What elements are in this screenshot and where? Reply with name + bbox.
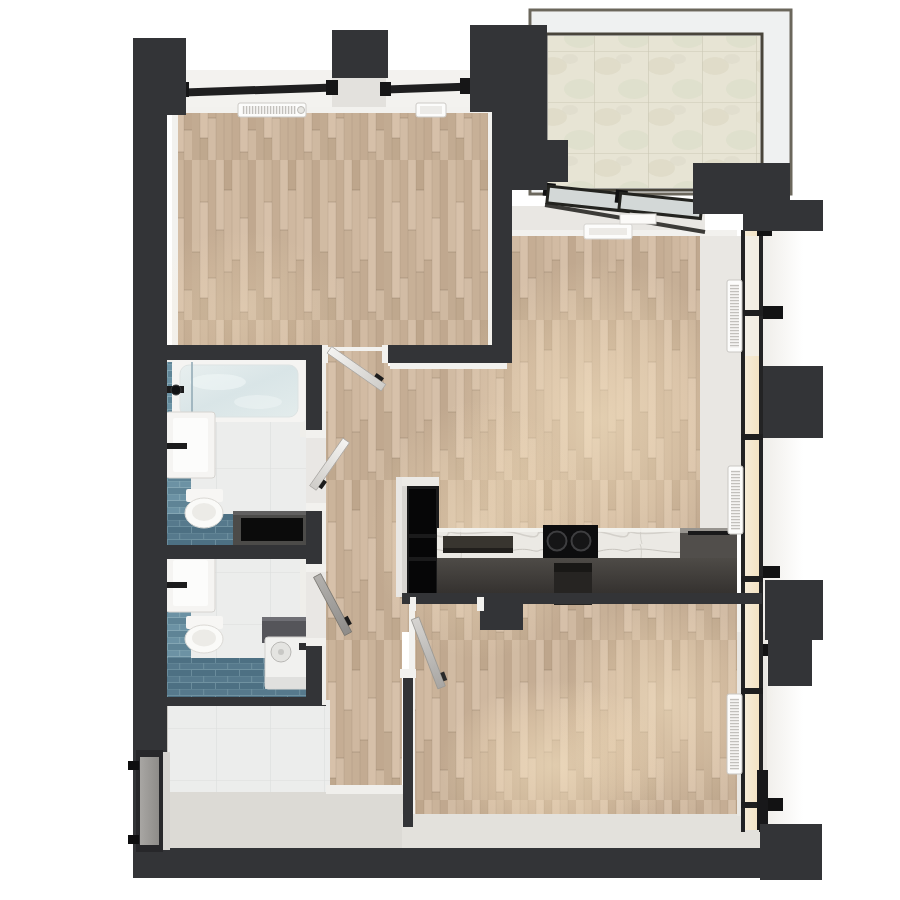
toilet-second-seat	[192, 630, 216, 647]
entry-door-panel	[140, 757, 159, 845]
wall-bathroom-top	[133, 345, 322, 360]
wall-bottom-right-corner	[760, 824, 822, 880]
wall-left	[133, 112, 167, 850]
floor-plan-render	[0, 0, 900, 900]
radiator-slats	[730, 284, 739, 348]
radiator-face	[420, 106, 442, 114]
entry-door-threshold	[163, 752, 170, 850]
door-jamb	[382, 345, 388, 363]
window-post	[326, 80, 338, 95]
facade-transom	[741, 434, 763, 440]
bath-faucet-knob	[171, 385, 181, 395]
cooktop-burner	[548, 532, 567, 551]
sink-block-top	[554, 563, 592, 572]
tall-cabinet-edge	[402, 486, 407, 597]
wall-window-pillar	[332, 30, 388, 78]
door-jamb	[306, 503, 326, 511]
facade-transom	[741, 688, 763, 694]
tall-cabinet-door	[409, 489, 436, 534]
bottom-room-bottom-face	[402, 814, 767, 852]
door-jamb	[306, 564, 326, 572]
wall-kitchen	[402, 593, 762, 604]
wall-bathroom-bottom	[150, 697, 326, 706]
counter-rail	[688, 531, 730, 535]
toilet-main-seat	[192, 503, 216, 521]
hall-bottom-trim	[326, 785, 404, 794]
washing-machine-shade	[265, 677, 312, 689]
wall-stub-cap	[400, 669, 416, 678]
door-jamb	[477, 597, 484, 611]
bathroom-main	[149, 356, 311, 547]
sill-vent-grille	[589, 228, 627, 235]
tall-cabinet-top	[402, 477, 439, 486]
cooktop-burner	[572, 532, 591, 551]
radiator-slats	[242, 106, 296, 114]
facade-transom	[741, 310, 763, 316]
entry-door-hinge	[128, 835, 139, 844]
radiator-slats	[730, 698, 739, 770]
facade-transom	[741, 576, 763, 582]
radiator-slats	[731, 470, 740, 530]
bathtub	[180, 365, 298, 417]
wall-top-left-pillar	[133, 38, 186, 115]
wall-white-face	[390, 363, 507, 369]
entry-door-hinge	[128, 761, 139, 770]
tall-cabinet-door	[409, 561, 436, 594]
facade-corner-mullion	[757, 770, 768, 830]
wall-stub	[403, 677, 413, 827]
wall-kitchen-step	[480, 604, 523, 630]
bathtub-water-highlight	[190, 374, 246, 390]
entry-bottom-face	[150, 792, 410, 850]
window-post	[380, 82, 391, 96]
bathtub-water-highlight	[234, 395, 282, 409]
floor-plan-stage	[0, 0, 900, 900]
facade-mullion	[759, 230, 763, 832]
door-jamb	[410, 597, 416, 611]
entry-tile-floor	[168, 700, 330, 795]
tall-cabinet-drawer	[409, 538, 436, 557]
wall-bedroom-right	[492, 108, 512, 347]
bath-wall-hall-face	[322, 345, 326, 705]
door-jamb	[322, 345, 328, 363]
door-jamb	[306, 638, 326, 646]
wall-bedroom-bottom	[388, 345, 512, 363]
facade-clamp	[763, 306, 783, 319]
counter-niche-shadow	[443, 548, 513, 553]
wall-bathroom-divider	[150, 545, 322, 559]
bathroom-second	[163, 554, 319, 697]
radiator-knob	[298, 107, 305, 114]
washing-machine-dial	[278, 649, 284, 655]
sill-vent-small	[620, 214, 656, 224]
facade-column-block	[763, 366, 823, 438]
wall-bottom	[133, 848, 773, 878]
door-jamb	[306, 430, 326, 438]
storage-bench-edge	[233, 511, 310, 515]
facade-clamp	[763, 566, 780, 578]
wall-balcony-step	[538, 140, 568, 182]
tall-cabinet-side	[396, 477, 403, 597]
storage-bench-niche	[241, 518, 303, 541]
